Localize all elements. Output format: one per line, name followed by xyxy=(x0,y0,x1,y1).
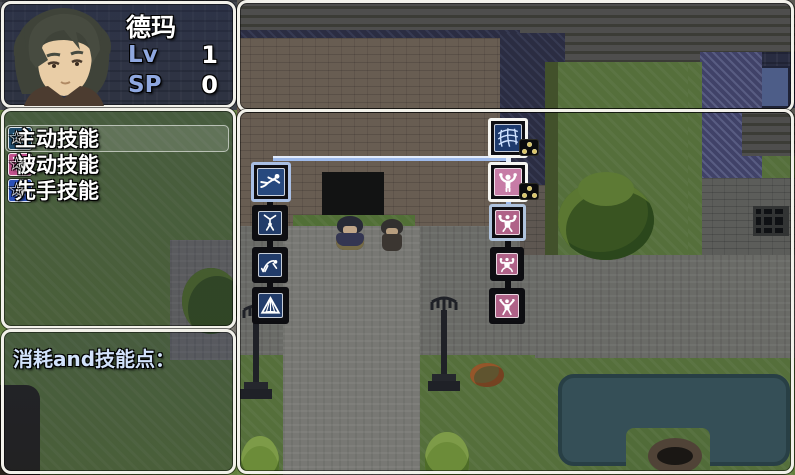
cost-label: 消耗and技能点： xyxy=(13,343,175,372)
star-icon: ☆ xyxy=(8,153,25,175)
menu-item-active-skills[interactable]: 主动技能 ☆ xyxy=(8,125,226,151)
skill-node-tent[interactable] xyxy=(252,287,289,324)
menu-item-label: 先手技能 xyxy=(15,175,99,205)
skill-link xyxy=(273,156,508,161)
skill-cost-badge xyxy=(519,183,539,200)
game-screen: 德玛 Lv 1 SP 0 主动技能 ☆ 被动技能 ☆ 先手技能 ☆ 消耗and技… xyxy=(0,0,795,475)
skill-node-dash[interactable] xyxy=(251,162,291,202)
menu-item-passive-skills[interactable]: 被动技能 ☆ xyxy=(8,151,226,177)
star-icon: ☆ xyxy=(8,127,25,149)
skill-node-backbend[interactable] xyxy=(252,247,288,283)
net-icon xyxy=(494,124,522,152)
menu-item-firststrike-skills[interactable]: 先手技能 ☆ xyxy=(8,177,226,203)
sp-value: 0 xyxy=(178,71,218,99)
muscle-flex-icon xyxy=(495,210,520,235)
skill-node-muscle-3[interactable] xyxy=(489,288,525,324)
dash-figure-icon xyxy=(257,168,285,196)
character-name: 德玛 xyxy=(126,8,176,44)
muscle-spread-icon xyxy=(495,294,519,318)
muscle-crab-icon xyxy=(496,253,518,275)
character-portrait xyxy=(6,4,120,106)
map-top-window xyxy=(237,0,794,112)
sp-label: SP xyxy=(128,72,161,98)
skill-node-cartwheel[interactable] xyxy=(252,205,288,241)
arms-up-figure-icon xyxy=(494,168,522,196)
backbend-figure-icon xyxy=(258,253,282,277)
level-value: 1 xyxy=(178,41,218,69)
skill-cost-badge xyxy=(519,139,539,156)
skill-node-muscle-1[interactable] xyxy=(489,204,526,241)
cartwheel-figure-icon xyxy=(258,211,282,235)
tent-icon xyxy=(258,293,283,318)
level-label: Lv xyxy=(128,42,158,68)
star-icon: ☆ xyxy=(8,179,25,201)
skill-node-muscle-2[interactable] xyxy=(490,247,524,281)
